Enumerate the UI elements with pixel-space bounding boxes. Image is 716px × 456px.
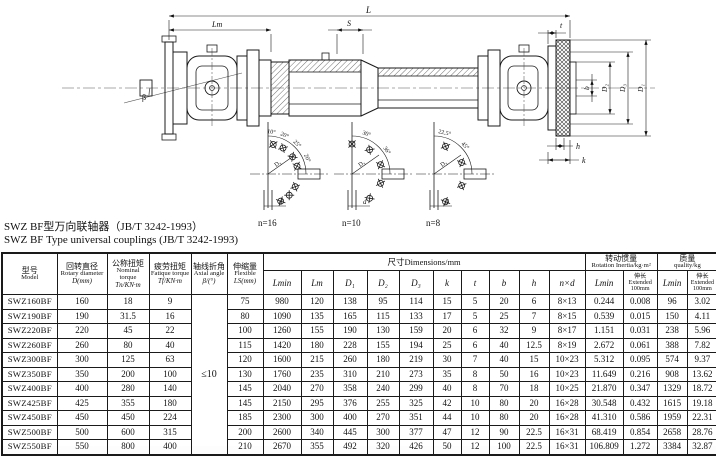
value-cell: 80 (227, 309, 263, 324)
value-cell: 0.031 (623, 324, 657, 339)
value-cell: 30.548 (585, 396, 623, 411)
value-cell: 75 (227, 295, 263, 310)
value-cell: 3.02 (687, 295, 716, 310)
value-cell: 240 (367, 382, 399, 397)
value-cell: 28.76 (687, 425, 716, 440)
value-cell: 210 (367, 367, 399, 382)
header-symbol: β/(°) (192, 278, 227, 286)
model-cell: SWZ190BF (2, 309, 57, 324)
value-cell: 0.854 (623, 425, 657, 440)
value-cell: 114 (399, 295, 433, 310)
value-cell: 9 (149, 295, 191, 310)
col-header-b: b (489, 271, 519, 295)
value-cell: 185 (227, 411, 263, 426)
value-cell: 20 (519, 396, 549, 411)
bolt-diagram-n16: D₃ 10° 20° 25° 20° d n=16 (250, 122, 328, 228)
model-cell: SWZ220BF (2, 324, 57, 339)
group-header-dimensions: 尺寸Dimensions/mm (263, 253, 585, 271)
value-cell: 140 (149, 382, 191, 397)
value-cell: 0.586 (623, 411, 657, 426)
table-row: SWZ350BF35020010013017602353102102733585… (2, 367, 716, 382)
col-header-D1: D₁ (333, 271, 367, 295)
value-cell: 908 (657, 367, 687, 382)
axial-angle-cell: ≤10 (191, 295, 227, 455)
value-cell: 40 (149, 338, 191, 353)
sleeve-wall-hatch-top (289, 60, 361, 72)
value-cell: 21.870 (585, 382, 623, 397)
col-header-inertia-Lmin: Lmin (585, 271, 623, 295)
value-cell: 355 (301, 440, 333, 455)
value-cell: 40 (489, 353, 519, 368)
group-header-quality: 质量 quality/kg (657, 253, 716, 271)
value-cell: 2670 (263, 440, 301, 455)
value-cell: 1260 (263, 324, 301, 339)
model-cell: SWZ450BF (2, 411, 57, 426)
table-row: SWZ260BF26080401151420180228155194256401… (2, 338, 716, 353)
value-cell: 35 (433, 367, 461, 382)
value-cell: 800 (107, 440, 149, 455)
model-cell: SWZ400BF (2, 382, 57, 397)
value-cell: 5.96 (687, 324, 716, 339)
value-cell: 0.095 (623, 353, 657, 368)
dim-label-Lm: Lm (211, 20, 222, 29)
value-cell: 16 (149, 309, 191, 324)
grease-nipple (322, 53, 329, 60)
value-cell: 50 (489, 367, 519, 382)
value-cell: 574 (657, 353, 687, 368)
value-cell: 160 (57, 295, 107, 310)
value-cell: 40 (489, 338, 519, 353)
value-cell: 22 (149, 324, 191, 339)
value-cell: 194 (399, 338, 433, 353)
hole-dia-label: d (445, 198, 449, 206)
model-cell: SWZ260BF (2, 338, 57, 353)
col-header-flexible: 伸缩量 Flexible LS(mm) (227, 253, 263, 295)
col-header-k: k (433, 271, 461, 295)
value-cell: 5 (461, 309, 489, 324)
header-symbol: D(mm) (58, 278, 107, 286)
value-cell: 6 (461, 338, 489, 353)
value-cell: 3384 (657, 440, 687, 455)
value-cell: 180 (301, 338, 333, 353)
value-cell: 6 (461, 324, 489, 339)
value-cell: 155 (301, 324, 333, 339)
value-cell: 1.151 (585, 324, 623, 339)
value-cell: 1615 (657, 396, 687, 411)
header-en: quality/kg (658, 263, 716, 270)
value-cell: 115 (367, 309, 399, 324)
value-cell: 273 (399, 367, 433, 382)
value-cell: 2040 (263, 382, 301, 397)
table-row: SWZ300BF30012563120160021526018021930740… (2, 353, 716, 368)
value-cell: 106.809 (585, 440, 623, 455)
table-row: SWZ500BF50060031520026003404453003774712… (2, 425, 716, 440)
value-cell: 32 (489, 324, 519, 339)
value-cell: 190 (333, 324, 367, 339)
value-cell: 0.244 (585, 295, 623, 310)
col-header-rotary-diameter: 回转直径 Rotary diameter D(mm) (57, 253, 107, 295)
value-cell: 238 (657, 324, 687, 339)
value-cell: 31.5 (107, 309, 149, 324)
dim-label-t: t (560, 21, 563, 30)
col-header-model: 型号 Model (2, 253, 57, 295)
value-cell: 125 (107, 353, 149, 368)
model-cell: SWZ500BF (2, 425, 57, 440)
value-cell: 190 (57, 309, 107, 324)
value-cell: 260 (57, 338, 107, 353)
value-cell: 400 (333, 411, 367, 426)
bolt-circle-label: D₃ (358, 160, 367, 169)
value-cell: 600 (107, 425, 149, 440)
value-cell: 138 (333, 295, 367, 310)
value-cell: 13.62 (687, 367, 716, 382)
dim-label-D2: D₂ (600, 84, 609, 93)
value-cell: 325 (399, 396, 433, 411)
value-cell: 11.649 (585, 367, 623, 382)
value-cell: 44 (433, 411, 461, 426)
dim-label-S: S (347, 19, 351, 28)
value-cell: 300 (301, 411, 333, 426)
value-cell: 270 (367, 411, 399, 426)
value-cell: 150 (657, 309, 687, 324)
value-cell: 376 (333, 396, 367, 411)
col-header-quality-extended: 伸长 Extended 100mm (687, 271, 716, 295)
value-cell: 980 (263, 295, 301, 310)
value-cell: 45 (107, 324, 149, 339)
col-header-nominal-torque: 公称扭矩 Nominal torque Tn/KN·m (107, 253, 149, 295)
value-cell: 1329 (657, 382, 687, 397)
value-cell: 17 (433, 309, 461, 324)
value-cell: 42 (433, 396, 461, 411)
value-cell: 450 (57, 411, 107, 426)
coupling-spec-table: 型号 Model 回转直径 Rotary diameter D(mm) 公称扭矩… (1, 252, 716, 456)
value-cell: 68.419 (585, 425, 623, 440)
value-cell: 25 (489, 309, 519, 324)
value-cell: 130 (227, 367, 263, 382)
header-symbol: LS(mm) (228, 278, 263, 286)
coupling-side-view: β (62, 36, 655, 140)
value-cell: 80 (489, 411, 519, 426)
value-cell: 1420 (263, 338, 301, 353)
value-cell: 22.31 (687, 411, 716, 426)
value-cell: 340 (301, 425, 333, 440)
col-header-h: h (519, 271, 549, 295)
value-cell: 12 (461, 425, 489, 440)
bolt-count-label: n=8 (426, 218, 441, 228)
value-cell: 145 (227, 396, 263, 411)
bolt-circle-label: D₃ (274, 160, 283, 169)
value-cell: 235 (301, 367, 333, 382)
value-cell: 5 (461, 295, 489, 310)
value-cell: 315 (149, 425, 191, 440)
col-header-D2: D₂ (367, 271, 399, 295)
value-cell: 350 (57, 367, 107, 382)
value-cell: 299 (399, 382, 433, 397)
value-cell: 12.5 (519, 338, 549, 353)
value-cell: 500 (57, 425, 107, 440)
value-cell: 280 (107, 382, 149, 397)
value-cell: 16 (519, 367, 549, 382)
value-cell: 425 (57, 396, 107, 411)
value-cell: 19.18 (687, 396, 716, 411)
value-cell: 8 (461, 382, 489, 397)
value-cell: 300 (57, 353, 107, 368)
value-cell: 550 (57, 440, 107, 455)
angle-label: 10° (267, 128, 277, 136)
col-header-quality-Lmin: Lmin (657, 271, 687, 295)
angle-label: 20° (279, 130, 290, 140)
table-row: SWZ450BF45045022418523003004002703514410… (2, 411, 716, 426)
value-cell: 63 (149, 353, 191, 368)
value-cell: 210 (227, 440, 263, 455)
value-cell: 10×23 (549, 353, 585, 368)
model-cell: SWZ350BF (2, 367, 57, 382)
value-cell: 40 (433, 382, 461, 397)
value-cell: 351 (399, 411, 433, 426)
value-cell: 180 (367, 353, 399, 368)
value-cell: 1090 (263, 309, 301, 324)
end-flange-section (556, 40, 570, 136)
model-cell: SWZ550BF (2, 440, 57, 455)
value-cell: 270 (301, 382, 333, 397)
dimensions: L Lm S t b D₂ D₃ (169, 5, 651, 165)
technical-drawing: β (0, 0, 716, 250)
value-cell: 9 (519, 324, 549, 339)
value-cell: 25 (433, 338, 461, 353)
header-val: 100mm (688, 286, 716, 293)
value-cell: 2.672 (585, 338, 623, 353)
angle-label: 20° (302, 153, 312, 164)
group-header-inertia: 转动惯量 Rotation Inertia/kg·m² (585, 253, 657, 271)
model-cell: SWZ425BF (2, 396, 57, 411)
angle-label: 25° (292, 138, 303, 149)
value-cell: 100 (489, 440, 519, 455)
value-cell: 355 (107, 396, 149, 411)
bolt-diagram-n10: D₃ 30° 36° d n=10 (334, 122, 412, 228)
value-cell: 16×31 (549, 425, 585, 440)
value-cell: 133 (399, 309, 433, 324)
value-cell: 1760 (263, 367, 301, 382)
value-cell: 20 (519, 411, 549, 426)
value-cell: 358 (333, 382, 367, 397)
value-cell: 16×28 (549, 411, 585, 426)
tube-wall-hatch (378, 68, 478, 76)
col-header-nxd: n×d (549, 271, 585, 295)
value-cell: 0.216 (623, 367, 657, 382)
value-cell: 30 (433, 353, 461, 368)
value-cell: 215 (301, 353, 333, 368)
value-cell: 0.347 (623, 382, 657, 397)
value-cell: 388 (657, 338, 687, 353)
value-cell: 2300 (263, 411, 301, 426)
value-cell: 2150 (263, 396, 301, 411)
value-cell: 22.5 (519, 440, 549, 455)
value-cell: 0.432 (623, 396, 657, 411)
value-cell: 7 (519, 309, 549, 324)
value-cell: 1959 (657, 411, 687, 426)
value-cell: 80 (489, 396, 519, 411)
value-cell: 15 (433, 295, 461, 310)
value-cell: 0.539 (585, 309, 623, 324)
bolt-count-label: n=10 (342, 218, 361, 228)
value-cell: 219 (399, 353, 433, 368)
value-cell: 180 (149, 396, 191, 411)
value-cell: 400 (149, 440, 191, 455)
spline-section-hatched (271, 62, 289, 114)
col-header-axial-angle: 轴线折角 Axial angle β/(°) (191, 253, 227, 295)
value-cell: 377 (399, 425, 433, 440)
value-cell: 100 (227, 324, 263, 339)
catalog-page: β (0, 0, 716, 446)
value-cell: 70 (489, 382, 519, 397)
value-cell: 300 (367, 425, 399, 440)
value-cell: 8×15 (549, 309, 585, 324)
value-cell: 96 (657, 295, 687, 310)
value-cell: 10×23 (549, 367, 585, 382)
hole-dia-label: d (363, 198, 367, 206)
value-cell: 450 (107, 411, 149, 426)
header-en: Rotation Inertia/kg·m² (586, 263, 657, 270)
value-cell: 120 (227, 353, 263, 368)
value-cell: 15 (519, 353, 549, 368)
value-cell: 47 (433, 425, 461, 440)
dim-label-D1: D₁ (636, 84, 645, 93)
angle-label: 45° (460, 140, 471, 151)
value-cell: 130 (367, 324, 399, 339)
value-cell: 260 (333, 353, 367, 368)
value-cell: 445 (333, 425, 367, 440)
value-cell: 90 (489, 425, 519, 440)
header-en: Nominal torque (108, 268, 149, 282)
value-cell: 310 (333, 367, 367, 382)
value-cell: 16×31 (549, 440, 585, 455)
table-row: SWZ400BF40028014014520402703582402994087… (2, 382, 716, 397)
value-cell: 8 (461, 367, 489, 382)
value-cell: 41.310 (585, 411, 623, 426)
value-cell: 32.87 (687, 440, 716, 455)
table-body: SWZ160BF160189≤1075980120138951141552068… (2, 295, 716, 455)
value-cell: 6 (519, 295, 549, 310)
value-cell: 165 (333, 309, 367, 324)
value-cell: 22.5 (519, 425, 549, 440)
value-cell: 16×28 (549, 396, 585, 411)
value-cell: 426 (399, 440, 433, 455)
bolt-circle-label: D₃ (440, 160, 449, 169)
hole-dia-label: d (279, 198, 283, 206)
value-cell: 200 (227, 425, 263, 440)
value-cell: 1600 (263, 353, 301, 368)
value-cell: 20 (433, 324, 461, 339)
value-cell: 228 (333, 338, 367, 353)
value-cell: 155 (367, 338, 399, 353)
table-row: SWZ190BF19031.51680109013516511513317525… (2, 309, 716, 324)
value-cell: 120 (301, 295, 333, 310)
header-symbol: Tf/KN·m (150, 278, 191, 286)
dim-label-D3: D₃ (618, 84, 627, 93)
col-header-fatigue-torque: 疲劳扭矩 Fatique torque Tf/KN·m (149, 253, 191, 295)
value-cell: 295 (301, 396, 333, 411)
value-cell: 5.312 (585, 353, 623, 368)
model-cell: SWZ300BF (2, 353, 57, 368)
value-cell: 10 (461, 411, 489, 426)
value-cell: 220 (57, 324, 107, 339)
bolt-count-label: n=16 (258, 218, 277, 228)
value-cell: 100 (149, 367, 191, 382)
table-row: SWZ160BF160189≤1075980120138951141552068… (2, 295, 716, 310)
value-cell: 20 (489, 295, 519, 310)
value-cell: 18 (519, 382, 549, 397)
dim-label-beta: β (142, 93, 146, 102)
value-cell: 255 (367, 396, 399, 411)
value-cell: 12 (461, 440, 489, 455)
value-cell: 8×19 (549, 338, 585, 353)
title-en: SWZ BF Type universal couplings (JB/T 32… (4, 234, 238, 247)
model-cell: SWZ160BF (2, 295, 57, 310)
value-cell: 115 (227, 338, 263, 353)
value-cell: 2658 (657, 425, 687, 440)
value-cell: 50 (433, 440, 461, 455)
value-cell: 10 (461, 396, 489, 411)
value-cell: 18 (107, 295, 149, 310)
value-cell: 159 (399, 324, 433, 339)
left-flange-bolt-bottom (162, 134, 176, 140)
value-cell: 0.015 (623, 309, 657, 324)
value-cell: 145 (227, 382, 263, 397)
table-row: SWZ425BF42535518014521502953762553254210… (2, 396, 716, 411)
value-cell: 8×17 (549, 324, 585, 339)
dim-label-k: k (582, 156, 586, 165)
value-cell: 320 (367, 440, 399, 455)
value-cell: 2600 (263, 425, 301, 440)
angle-label: 36° (381, 145, 392, 156)
titles: SWZ BF型万向联轴器（JB/T 3242-1993） SWZ BF Type… (4, 221, 238, 248)
col-header-Lmin: Lmin (263, 271, 301, 295)
table-row: SWZ220BF22045221001260155190130159206329… (2, 324, 716, 339)
header-symbol: Tn/KN·m (108, 282, 149, 290)
dim-label-h: h (576, 142, 580, 151)
value-cell: 224 (149, 411, 191, 426)
value-cell: 135 (301, 309, 333, 324)
value-cell: 95 (367, 295, 399, 310)
dim-label-b: b (582, 86, 591, 90)
beta-arc (149, 88, 150, 95)
col-header-inertia-extended: 伸长 Extended 100mm (623, 271, 657, 295)
value-cell: 0.061 (623, 338, 657, 353)
title-cn: SWZ BF型万向联轴器（JB/T 3242-1993） (4, 221, 238, 234)
value-cell: 80 (107, 338, 149, 353)
value-cell: 492 (333, 440, 367, 455)
value-cell: 0.008 (623, 295, 657, 310)
value-cell: 1.272 (623, 440, 657, 455)
dim-label-L: L (365, 5, 371, 15)
value-cell: 7 (461, 353, 489, 368)
value-cell: 400 (57, 382, 107, 397)
header-en: Model (3, 275, 57, 282)
col-header-Lm: Lm (301, 271, 333, 295)
col-header-t: t (461, 271, 489, 295)
header-val: 100mm (624, 286, 657, 293)
table-row: SWZ550BF55080040021026703554923204265012… (2, 440, 716, 455)
bolt-diagram-n8: D₃ 22.5° 45° d n=8 (416, 122, 494, 228)
value-cell: 10×25 (549, 382, 585, 397)
value-cell: 7.82 (687, 338, 716, 353)
value-cell: 4.11 (687, 309, 716, 324)
col-header-D3: D₃ (399, 271, 433, 295)
value-cell: 18.72 (687, 382, 716, 397)
value-cell: 8×13 (549, 295, 585, 310)
value-cell: 9.37 (687, 353, 716, 368)
value-cell: 200 (107, 367, 149, 382)
